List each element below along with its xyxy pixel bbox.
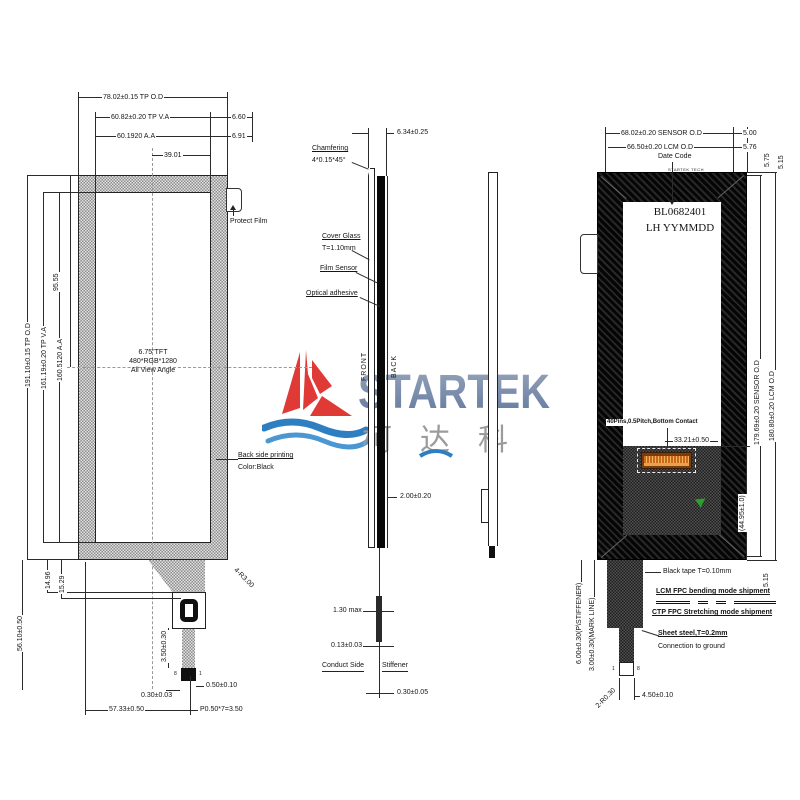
arrow-down-icon (669, 200, 675, 205)
dim-front-height-tpod: 191.10±0.15 TP O.D (24, 322, 33, 388)
back-fpc-wide (607, 560, 643, 628)
leader-line (672, 162, 673, 202)
dim-front-5733: 57.33±0.50 (108, 705, 145, 714)
front-fpc-tip (181, 668, 196, 681)
sheet-steel-label1: Sheet steel,T=0.2mm (658, 629, 727, 638)
leader-line (667, 428, 668, 448)
front-fpc-trapezoid (148, 560, 205, 593)
chamfer-label2: 4*0.15*45° (312, 156, 346, 165)
bezel-mark-text: STARTEK TECH (668, 165, 704, 174)
dim-back-width-sensor: 68.02±0.20 SENSOR O.D (620, 129, 703, 138)
dim-line (196, 686, 204, 687)
board-connector (641, 452, 692, 469)
dim-front-1529: 15.29 (58, 574, 67, 594)
dim-front-pitch: P0.50*7=3.50 (199, 705, 244, 714)
dim-front-corner-radius: 4-R3.00 (232, 566, 256, 590)
dim-line (352, 133, 368, 134)
pins-note: 40Pins,0.5Pitch,Bottom Contact (606, 419, 699, 426)
back-print-label1: Back side printing (238, 451, 293, 460)
dim-side-200: 2.00±0.20 (399, 492, 432, 501)
display-view-angle: All View Angle (103, 366, 203, 375)
ext-line (747, 172, 777, 173)
ext-line (27, 559, 78, 560)
ext-line (747, 556, 762, 557)
dim-back-600: 6.00±0.30(P\STIFFENER) (575, 582, 584, 665)
ext-line (386, 128, 387, 176)
side-cover-glass (368, 168, 375, 548)
dim-line (190, 710, 198, 711)
leader-line (642, 630, 659, 637)
dim-front-width-aa: 60.1920 A.A (116, 132, 156, 141)
dim-front-691: 6.91 (231, 132, 247, 141)
ship-note-lcm: LCM FPC bending mode shipment (656, 587, 770, 596)
dim-line (366, 693, 394, 694)
dim-back-515-bottom: 5.15 (762, 572, 771, 588)
dim-side-0305: 0.30±0.05 (396, 688, 429, 697)
dim-back-4495: (44.95±1.0) (738, 494, 747, 532)
display-resolution: 480*RGB*1280 (103, 357, 203, 366)
part-number-2: LH YYMMDD (640, 224, 720, 233)
dim-front-660: 6.60 (231, 113, 247, 122)
connector-pins (644, 456, 689, 463)
chamfer-label1: Chamfering (312, 144, 348, 153)
dim-back-width-lcm: 66.50±0.20 LCM O.D (626, 143, 694, 152)
dim-front-width-tpva: 60.82±0.20 TP V.A (110, 113, 170, 122)
side-profile-2-tab (481, 489, 489, 523)
startek-logo-graphic: STARTEK 柯达科 (262, 344, 554, 466)
break-segment (716, 601, 726, 604)
leader-line (352, 162, 369, 170)
ext-line (78, 92, 79, 175)
stiffener-label: Stiffener (382, 661, 408, 672)
ext-line (43, 192, 95, 193)
startek-logo: STARTEK 柯达科 (262, 344, 554, 466)
dim-line (634, 696, 640, 697)
dim-back-r030: 2-R0.30 (594, 686, 618, 710)
front-fpc-tail (182, 629, 195, 669)
dim-line (386, 133, 394, 134)
side-lcm-stack (377, 176, 385, 548)
dim-back-height-lcm: 180.80±0.20 LCM O.D (768, 370, 777, 442)
dim-back-575: 5.75 (763, 152, 772, 168)
sheet-steel-label2: Connection to ground (658, 642, 725, 651)
dim-front-height-aa: 160.5120 A.A (56, 338, 65, 382)
side-back-label: BACK (390, 355, 399, 378)
ext-line (368, 128, 369, 168)
part-number: BL0682401 (640, 208, 720, 217)
back-fpc-narrow (619, 628, 634, 664)
dim-line (362, 646, 394, 647)
dim-line (387, 497, 397, 498)
side-front-label: FRONT (360, 352, 369, 381)
display-size: 6.75"TFT (103, 348, 203, 357)
dim-back-450: 4.50±0.10 (641, 691, 674, 700)
dim-line (362, 611, 394, 612)
back-print-label2: Color:Black (238, 463, 274, 472)
side-back-line (387, 176, 388, 548)
dim-front-050: 0.50±0.10 (205, 681, 238, 690)
break-segment (698, 601, 708, 604)
break-segment (734, 601, 776, 604)
ship-note-ctp: CTP FPC Stretching mode shipment (652, 608, 772, 617)
back-pin1-label: 1 (612, 666, 615, 672)
engineering-drawing: STARTEK 柯达科 8 1 78.02±0.15 TP O.D 60.82±… (0, 0, 800, 800)
cover-glass-label1: Cover Glass (322, 232, 361, 241)
dim-back-300: 3.00±0.30(MARK LINE) (588, 597, 597, 672)
film-sensor-label: Film Sensor (320, 264, 357, 273)
dim-front-height-tpva: 161.19±0.20 TP V.A (40, 326, 49, 390)
leader-line (352, 250, 370, 260)
dim-front-1496: 14.96 (44, 570, 53, 590)
ext-line (252, 112, 253, 142)
leader-line (216, 459, 238, 460)
ext-line (210, 112, 211, 192)
front-centerline-v (152, 148, 153, 694)
optical-adhesive-label: Optical adhesive (306, 289, 358, 298)
break-segment (656, 601, 690, 604)
dim-back-500: 5.00 (742, 129, 758, 138)
ext-line (85, 562, 86, 715)
back-fpc-end (619, 662, 634, 676)
dim-line (775, 172, 776, 560)
ext-line (61, 598, 181, 599)
dim-front-9555: 95.55 (52, 272, 61, 292)
dim-front-5610: 56.10±0.50 (16, 615, 25, 652)
dim-front-350: 3.50±0.30 (160, 630, 169, 663)
dim-front-width-tpod: 78.02±0.15 TP O.D (102, 93, 164, 102)
leader-line (645, 572, 661, 573)
black-tape-label: Black tape T=0.10mm (663, 567, 731, 576)
dim-back-515-top: 5.15 (777, 154, 786, 170)
side-profile-2-tail (489, 546, 495, 558)
ext-line (619, 678, 620, 700)
ext-line (43, 542, 95, 543)
ext-line (747, 560, 777, 561)
dim-side-013: 0.13±0.03 (330, 641, 363, 650)
dim-front-030: 0.30±0.03 (140, 691, 173, 700)
wave-icon (264, 422, 368, 447)
date-code-label: Date Code (658, 152, 691, 161)
dim-line (70, 175, 71, 367)
dim-back-3321: 33.21±0.50 (673, 436, 710, 445)
protect-film-label: Protect Film (230, 217, 267, 226)
front-connector-hole (180, 599, 198, 622)
dim-front-3901: 39.01 (163, 151, 183, 160)
back-left-tab (580, 234, 598, 274)
dim-back-576: 5.76 (742, 143, 758, 152)
front-pin1-label: 1 (199, 671, 202, 677)
side-profile-2 (488, 172, 498, 546)
dim-back-height-sensor: 179.69±0.20 SENSOR O.D (753, 359, 762, 446)
ext-line (227, 92, 228, 175)
dim-side-thickness: 6.34±0.25 (396, 128, 429, 137)
ext-line (95, 112, 96, 192)
connector-edge (644, 463, 689, 466)
leader-line (233, 208, 234, 216)
back-pin8-label: 8 (637, 666, 640, 672)
dim-side-130: 1.30 max (332, 606, 363, 615)
side-stiffener-bar (376, 596, 382, 642)
back-inner-area (623, 202, 721, 446)
display-spec: 6.75"TFT 480*RGB*1280 All View Angle (103, 348, 203, 375)
front-pin8-label: 8 (174, 671, 177, 677)
conduct-side-label: Conduct Side (322, 661, 364, 672)
cover-glass-label2: T=1.10mm (322, 244, 356, 253)
sail-icon (282, 350, 352, 416)
